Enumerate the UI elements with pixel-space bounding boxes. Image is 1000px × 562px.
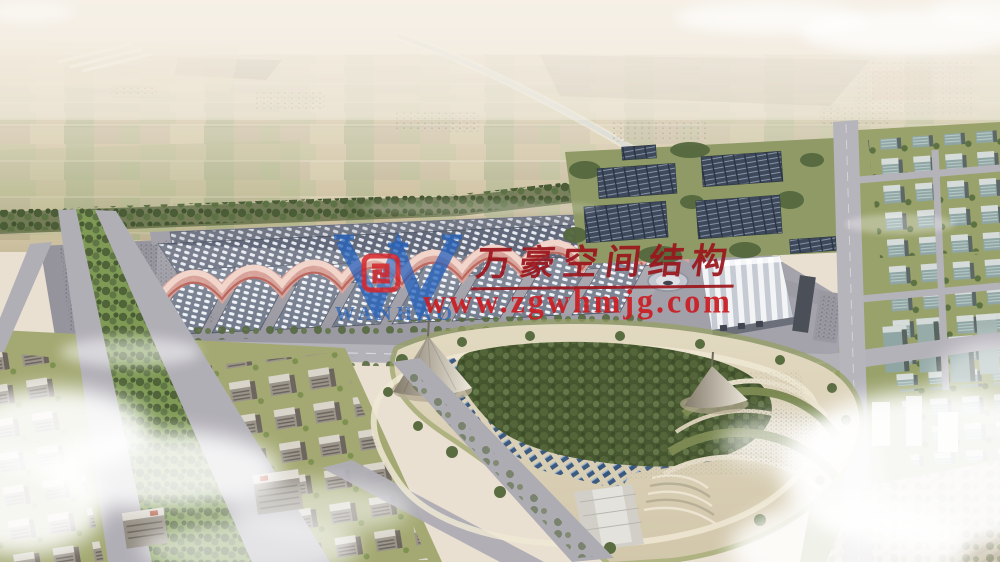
aerial-rendering-exhibition-campus: WANHAO 万豪空间结构 www.zgwhmjg.com: [0, 0, 1000, 562]
solar-farm: [563, 138, 848, 264]
rendered-scene: [0, 0, 1000, 562]
